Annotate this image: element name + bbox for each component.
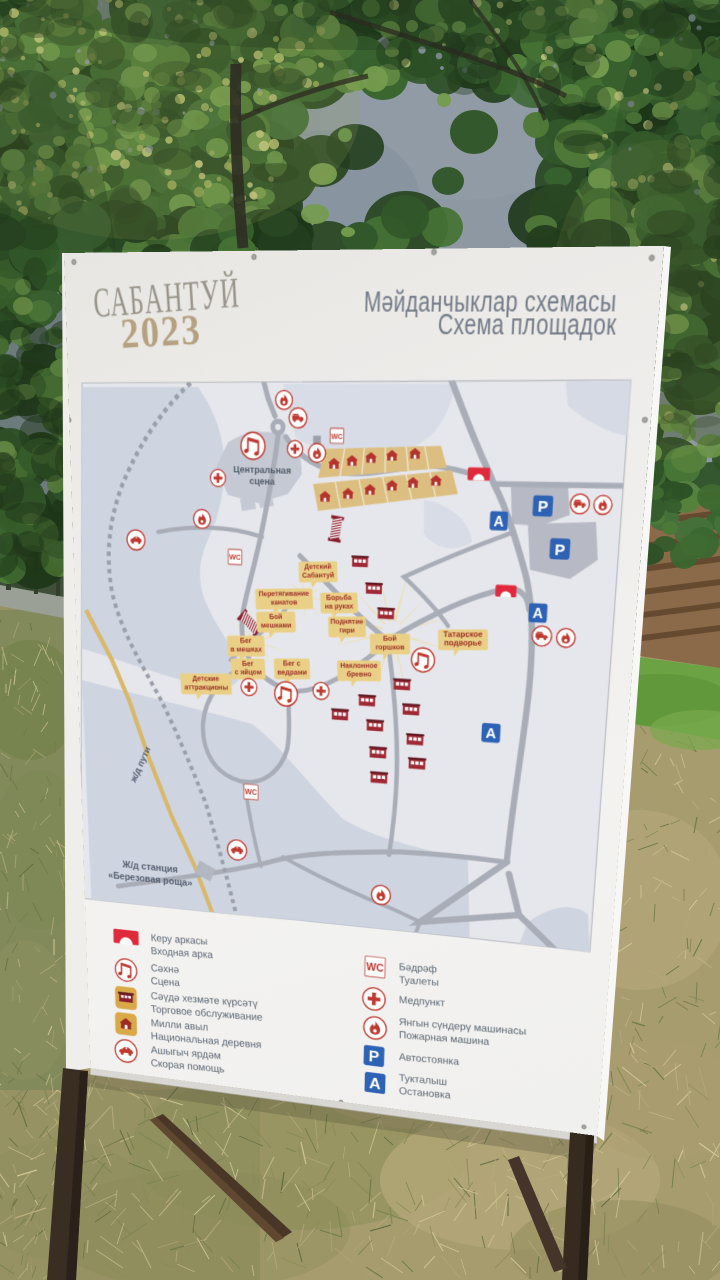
svg-text:в мешках: в мешках xyxy=(230,645,262,654)
svg-text:аттракционы: аттракционы xyxy=(184,683,229,692)
svg-text:мешками: мешками xyxy=(261,621,292,630)
svg-text:канатов: канатов xyxy=(271,598,298,607)
svg-text:на руках: на руках xyxy=(325,602,355,611)
svg-text:А: А xyxy=(493,514,504,531)
svg-text:бревно: бревно xyxy=(347,670,372,679)
svg-text:Автостоянка: Автостоянка xyxy=(399,1051,459,1068)
svg-text:Медпункт: Медпункт xyxy=(399,994,446,1009)
svg-text:гири: гири xyxy=(339,626,355,635)
svg-text:сцена: сцена xyxy=(249,476,275,488)
svg-text:подворье: подворье xyxy=(444,637,482,647)
svg-text:с яйцом: с яйцом xyxy=(235,668,263,677)
svg-text:Детские: Детские xyxy=(192,674,220,683)
svg-text:WC: WC xyxy=(229,553,241,562)
svg-text:2023: 2023 xyxy=(119,305,203,357)
svg-text:Входная арка: Входная арка xyxy=(150,945,213,961)
svg-text:WC: WC xyxy=(366,960,384,974)
svg-text:Схема площадок: Схема площадок xyxy=(437,309,617,342)
svg-text:Сәхнә: Сәхнә xyxy=(150,962,179,975)
svg-text:Перетягивание: Перетягивание xyxy=(259,589,310,598)
svg-text:Бой: Бой xyxy=(269,612,283,621)
svg-text:Туалеты: Туалеты xyxy=(399,974,439,988)
svg-text:А: А xyxy=(532,606,544,623)
svg-text:Центральная: Центральная xyxy=(233,464,291,477)
svg-text:А: А xyxy=(369,1075,381,1094)
svg-text:Бег: Бег xyxy=(242,659,255,668)
svg-text:А: А xyxy=(485,725,496,742)
svg-text:ведрами: ведрами xyxy=(277,668,307,677)
svg-text:Поднятие: Поднятие xyxy=(330,617,363,626)
svg-text:Р: Р xyxy=(368,1048,379,1067)
svg-text:Остановка: Остановка xyxy=(399,1085,451,1101)
svg-text:Бой: Бой xyxy=(383,634,397,643)
svg-text:Сцена: Сцена xyxy=(150,975,180,989)
svg-text:Наклонное: Наклонное xyxy=(340,661,377,670)
svg-text:WC: WC xyxy=(331,431,343,441)
svg-text:Р: Р xyxy=(537,498,548,516)
svg-text:WC: WC xyxy=(245,787,258,797)
svg-text:Бег с: Бег с xyxy=(283,659,301,668)
svg-text:Сабантуй: Сабантуй xyxy=(302,570,335,579)
svg-text:горшков: горшков xyxy=(376,643,405,652)
svg-text:Бәдрәф: Бәдрәф xyxy=(399,961,437,975)
svg-text:Бег: Бег xyxy=(240,636,253,645)
svg-text:Р: Р xyxy=(554,541,565,559)
